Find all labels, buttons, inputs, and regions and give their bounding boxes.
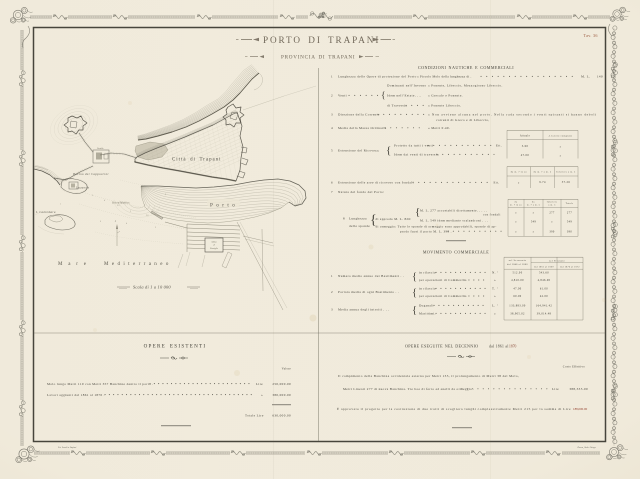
svg-text:Mediterraneo: Mediterraneo	[104, 262, 172, 267]
svg-text:37.26: 37.26	[562, 180, 571, 184]
svg-text:Lavori aggiunti dal 1861 al 18: Lavori aggiunti dal 1861 al 1870 .	[47, 393, 105, 397]
svg-text:Protetto da tutti i venti: Protetto da tutti i venti	[394, 144, 433, 148]
svg-text:549: 549	[567, 220, 573, 223]
svg-text:{: {	[412, 305, 417, 316]
svg-text:»: »	[518, 181, 520, 185]
svg-text:390: 390	[549, 230, 555, 233]
svg-text:Porto: Porto	[210, 203, 238, 209]
svg-text:i: i	[497, 271, 498, 273]
svg-text:47.00: 47.00	[513, 288, 521, 291]
svg-text:« Metri 0.40.: « Metri 0.40.	[428, 126, 450, 130]
svg-text:M. L.: M. L.	[581, 75, 590, 79]
svg-text:« Ponente, Libeccio, Mezzogior: « Ponente, Libeccio, Mezzogiorno Libecci…	[428, 84, 503, 89]
svg-text:Mare: Mare	[58, 262, 92, 267]
svg-text:388,335.00: 388,335.00	[569, 387, 588, 392]
svg-text:m. 7 a m. 5: m. 7 a m. 5	[527, 204, 540, 206]
svg-text:1870: 1870	[509, 345, 517, 349]
svg-text:4,846.00: 4,846.00	[538, 279, 551, 282]
svg-text:Idem dai venti di traversia: Idem dai venti di traversia	[394, 153, 439, 157]
svg-text:Ronciglio: Ronciglio	[209, 248, 218, 250]
svg-text:{: {	[386, 145, 392, 157]
svg-text:i: i	[497, 287, 498, 289]
svg-text:164,941.42: 164,941.42	[536, 305, 553, 308]
svg-text:Estensione del Ricovero: Estensione del Ricovero	[338, 149, 379, 153]
svg-text:8: 8	[343, 217, 345, 221]
svg-text:Metri Lineari 277 di nuova Ban: Metri Lineari 277 di nuova Banchina. Tre…	[343, 387, 475, 391]
svg-text:Portata media di ogni Bastimen: Portata media di ogni Bastimento . .	[338, 290, 399, 294]
svg-text:dal 1870 al 1872: dal 1870 al 1872	[560, 266, 579, 268]
svg-text:47.00: 47.00	[521, 153, 530, 157]
svg-text:PROVINCIA DI TRAPANI: PROVINCIA DI TRAPANI	[281, 54, 355, 60]
svg-text:P: P	[114, 221, 117, 223]
svg-text:. .: . .	[376, 149, 380, 153]
svg-text:Il compimento della Banchina o: Il compimento della Banchina occidentale…	[338, 374, 519, 379]
svg-text:38,905.02: 38,905.02	[510, 313, 525, 316]
svg-text:»: »	[494, 312, 496, 316]
svg-text:Ett.: Ett.	[496, 144, 502, 148]
svg-text:133,883.00: 133,883.00	[509, 305, 526, 308]
svg-text:dal 1846 al 1860: dal 1846 al 1860	[507, 264, 528, 266]
svg-text:È approvato il progetto per la: È approvato il progetto per la costruzio…	[337, 406, 571, 411]
svg-text:3: 3	[155, 227, 156, 229]
svg-text:390: 390	[567, 230, 573, 233]
svg-text:7: 7	[331, 190, 333, 194]
svg-text:3: 3	[331, 113, 333, 117]
svg-text:140: 140	[597, 75, 603, 79]
svg-text:Castello: Castello	[97, 147, 103, 150]
svg-text:Valore: Valore	[282, 367, 292, 371]
svg-text:380,000.00: 380,000.00	[272, 393, 291, 398]
svg-text:a m. 5: a m. 5	[548, 204, 555, 206]
svg-text:Ett.: Ett.	[494, 181, 500, 185]
svg-text:Media annua degli introiti .: Media annua degli introiti . . .	[338, 308, 389, 312]
svg-text:Secca Marita: Secca Marita	[112, 202, 129, 205]
svg-text:{: {	[412, 287, 417, 298]
svg-text:Costo Effettivo: Costo Effettivo	[563, 364, 585, 368]
svg-text:M. L. 549 idem mediante scal: M. L. 549 idem mediante scalandroni . . …	[420, 219, 488, 223]
svg-text:Lunghezza: Lunghezza	[349, 217, 367, 221]
svg-text:»: »	[515, 220, 517, 223]
svg-text:277: 277	[549, 211, 555, 214]
svg-text:»: »	[560, 144, 562, 148]
svg-text:2.6: 2.6	[146, 215, 149, 217]
svg-text:»: »	[533, 230, 535, 233]
svg-text:Estensione delle aree di ricov: Estensione delle aree di ricovero con fo…	[338, 181, 414, 185]
svg-text:250,000.00: 250,000.00	[272, 382, 291, 387]
svg-text:60.00: 60.00	[513, 295, 521, 298]
svg-text:in rilascio: in rilascio	[419, 271, 436, 275]
svg-text:9.74: 9.74	[539, 180, 546, 184]
svg-text:I. Colombara: I. Colombara	[35, 210, 56, 214]
svg-text:512.00: 512.00	[513, 272, 523, 275]
svg-text:Direzione della Corrente: Direzione della Corrente	[338, 113, 380, 117]
svg-text:3: 3	[331, 308, 333, 312]
svg-text:Venti: Venti	[338, 94, 347, 98]
svg-text:4: 4	[104, 200, 105, 202]
svg-text:5.60: 5.60	[522, 144, 529, 148]
svg-text:2: 2	[165, 194, 166, 196]
svg-text:630,000.00: 630,000.00	[272, 413, 291, 418]
svg-text:di Traversia: di Traversia	[387, 104, 407, 108]
svg-text:Salina: Salina	[211, 242, 216, 244]
svg-text:dal 1861 al 1869: dal 1861 al 1869	[534, 266, 553, 268]
svg-text:5: 5	[92, 195, 93, 197]
svg-text:Città di Trapani: Città di Trapani	[172, 158, 222, 163]
svg-text:CONDIZIONI NAUTICHE E COMMERCI: CONDIZIONI NAUTICHE E COMMERCIALI	[418, 65, 514, 70]
svg-text:39,014.48: 39,014.48	[537, 313, 552, 316]
svg-text:1: 1	[331, 75, 333, 79]
svg-text:da m. 7 a m. 5: da m. 7 a m. 5	[534, 171, 552, 173]
svg-text:Attuale: Attuale	[520, 135, 531, 138]
svg-text:di approdo M. L. 826:: di approdo M. L. 826:	[376, 217, 412, 221]
svg-text:« Piccolo Molo della lunghezza: « Piccolo Molo della lunghezza di .	[417, 75, 472, 79]
svg-text:{: {	[381, 91, 386, 101]
svg-text:MOVIMENTO COMMERCIALE: MOVIMENTO COMMERCIALE	[423, 249, 489, 254]
svg-text:Tav. 36: Tav. 36	[584, 33, 598, 38]
svg-text:6: 6	[331, 181, 333, 185]
svg-text:m. 7 in su: m. 7 in su	[510, 204, 522, 206]
svg-text:da: da	[532, 202, 535, 204]
svg-text:277: 277	[567, 211, 573, 214]
svg-text:Natura del fondo del Porto:: Natura del fondo del Porto:	[338, 190, 384, 194]
svg-text:L.: L.	[492, 304, 496, 308]
svg-text:Inferiore: Inferiore	[547, 201, 557, 204]
svg-text:3: 3	[130, 211, 131, 213]
svg-text:4,810.00: 4,810.00	[511, 279, 524, 282]
svg-text:»: »	[494, 278, 496, 282]
svg-text:5: 5	[331, 149, 333, 153]
svg-text:»: »	[515, 230, 517, 233]
svg-text:»: »	[261, 393, 263, 397]
svg-text:N.: N.	[492, 271, 496, 275]
svg-text:»: »	[551, 220, 553, 223]
svg-text:Lire: Lire	[256, 382, 263, 386]
svg-text:»: »	[515, 211, 517, 214]
svg-text:Lit. Landi e Stefani: Lit. Landi e Stefani	[57, 446, 77, 449]
svg-text:dal 1861 al: dal 1861 al	[489, 345, 509, 349]
svg-text:nel Sessennio: nel Sessennio	[509, 260, 527, 262]
svg-text:42.00: 42.00	[540, 295, 548, 298]
svg-text:61.00: 61.00	[540, 288, 548, 291]
svg-text:Marittimi.: Marittimi.	[419, 312, 436, 316]
svg-text:correnti di Greco e di Libecci: correnti di Greco e di Libeccio,	[436, 118, 490, 123]
svg-text:in rilascio: in rilascio	[419, 287, 436, 291]
svg-text:4: 4	[126, 223, 127, 225]
svg-text:nel Triennio: nel Triennio	[549, 260, 565, 262]
svg-text:1: 1	[331, 274, 333, 278]
svg-text:con fondali: con fondali	[483, 213, 501, 217]
svg-text:Idem nell’Estate. . ,: Idem nell’Estate. . ,	[387, 94, 421, 99]
svg-text:Dominanti nell’Inverno: Dominanti nell’Inverno	[387, 84, 427, 88]
svg-text:OPERE ESEGUITE NEL DECENNIO: OPERE ESEGUITE NEL DECENNIO	[405, 344, 478, 349]
svg-text:2: 2	[331, 290, 333, 294]
svg-text:A lavoro compiuto: A lavoro compiuto	[549, 135, 573, 138]
svg-text:Lunghezza delle Opere di prote: Lunghezza delle Opere di protezione del …	[338, 75, 417, 79]
svg-text:Lazzaretto: Lazzaretto	[75, 187, 90, 190]
svg-text:« Grecale e Ponente.: « Grecale e Ponente.	[428, 94, 463, 98]
svg-text:Totale Lire: Totale Lire	[245, 413, 264, 417]
svg-text:Totale: Totale	[566, 203, 574, 205]
svg-text:da: da	[515, 202, 518, 204]
svg-text:i: i	[497, 304, 498, 306]
svg-text:188,000.00: 188,000.00	[573, 407, 588, 412]
svg-text:7: 7	[60, 204, 61, 206]
svg-text:»: »	[494, 294, 496, 298]
svg-text:549: 549	[531, 220, 537, 223]
svg-text:Doganali: Doganali	[419, 304, 434, 308]
svg-text:Media della Marea Ordinaria: Media della Marea Ordinaria	[338, 126, 387, 130]
svg-text:per operazioni di Commercio: per operazioni di Commercio	[419, 278, 467, 282]
svg-text:OPERE ESISTENTI: OPERE ESISTENTI	[144, 344, 207, 350]
svg-text:Lire: Lire	[552, 387, 559, 391]
svg-text:delle sponde: delle sponde	[349, 224, 370, 228]
svg-text:Molo lungo Metri 110 con Metri: Molo lungo Metri 110 con Metri 357 Banch…	[47, 382, 154, 386]
svg-text:T.: T.	[492, 287, 495, 291]
svg-text:Roma, Stab. Litogr.: Roma, Stab. Litogr.	[576, 446, 596, 449]
svg-text:PORTO DI TRAPANI: PORTO DI TRAPANI	[263, 35, 380, 45]
svg-text:prodo fuori il porto M. L. 390: prodo fuori il porto M. L. 390 .	[400, 229, 452, 233]
svg-text:Bacino dei Cappuccini: Bacino dei Cappuccini	[73, 172, 109, 176]
svg-text:Scala di 1 a 10 000: Scala di 1 a 10 000	[133, 285, 171, 290]
svg-text:6: 6	[100, 221, 101, 223]
svg-text:4: 4	[331, 126, 333, 130]
svg-text:{: {	[412, 271, 417, 282]
svg-text:da m. 7 in su: da m. 7 in su	[511, 171, 528, 173]
svg-text:»: »	[560, 153, 562, 157]
svg-text:3.5: 3.5	[117, 205, 120, 207]
svg-text:Numero medio annuo dei Bastime: Numero medio annuo dei Bastimenti . .	[338, 274, 404, 278]
svg-text:« Non avviene alcuna nel porto: « Non avviene alcuna nel porto. Nella ra…	[428, 113, 597, 117]
svg-text:»: »	[533, 211, 535, 214]
svg-text:M. L. 277 accostabili dirett: M. L. 277 accostabili direttamente. . . …	[420, 208, 487, 212]
svg-text:543.60: 543.60	[539, 272, 549, 275]
svg-text:Inferiore a m. 5: Inferiore a m. 5	[556, 170, 575, 173]
svg-text:per operazioni di Commercio: per operazioni di Commercio	[419, 294, 467, 298]
svg-text:« Ponente Libeccio.: « Ponente Libeccio.	[428, 104, 462, 108]
svg-text:2: 2	[331, 94, 333, 98]
